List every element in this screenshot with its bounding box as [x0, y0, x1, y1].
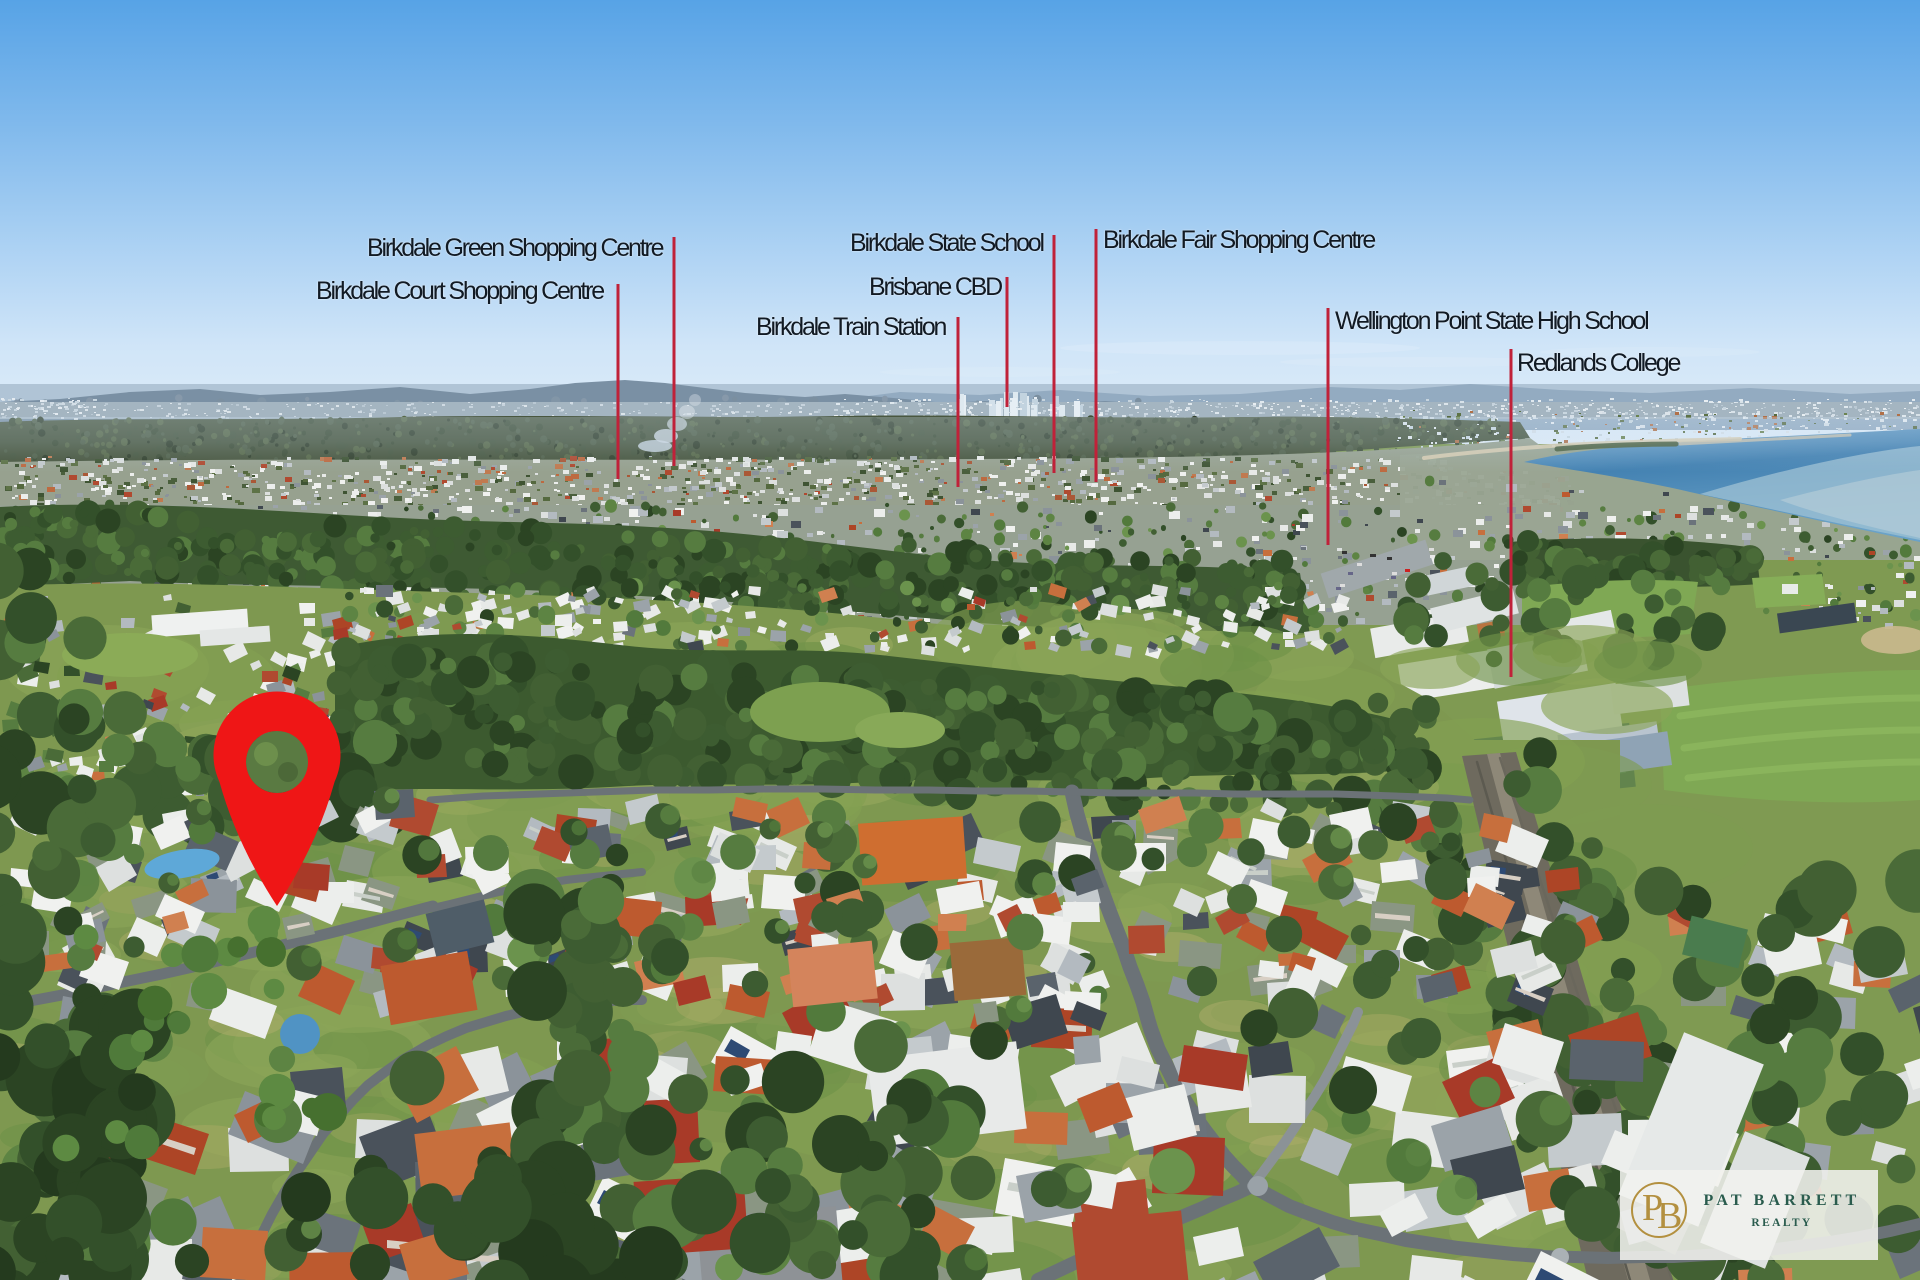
- svg-text:PAT BARRETT: PAT BARRETT: [1704, 1192, 1861, 1209]
- svg-text:REALTY: REALTY: [1751, 1217, 1812, 1229]
- svg-text:B: B: [1657, 1195, 1682, 1237]
